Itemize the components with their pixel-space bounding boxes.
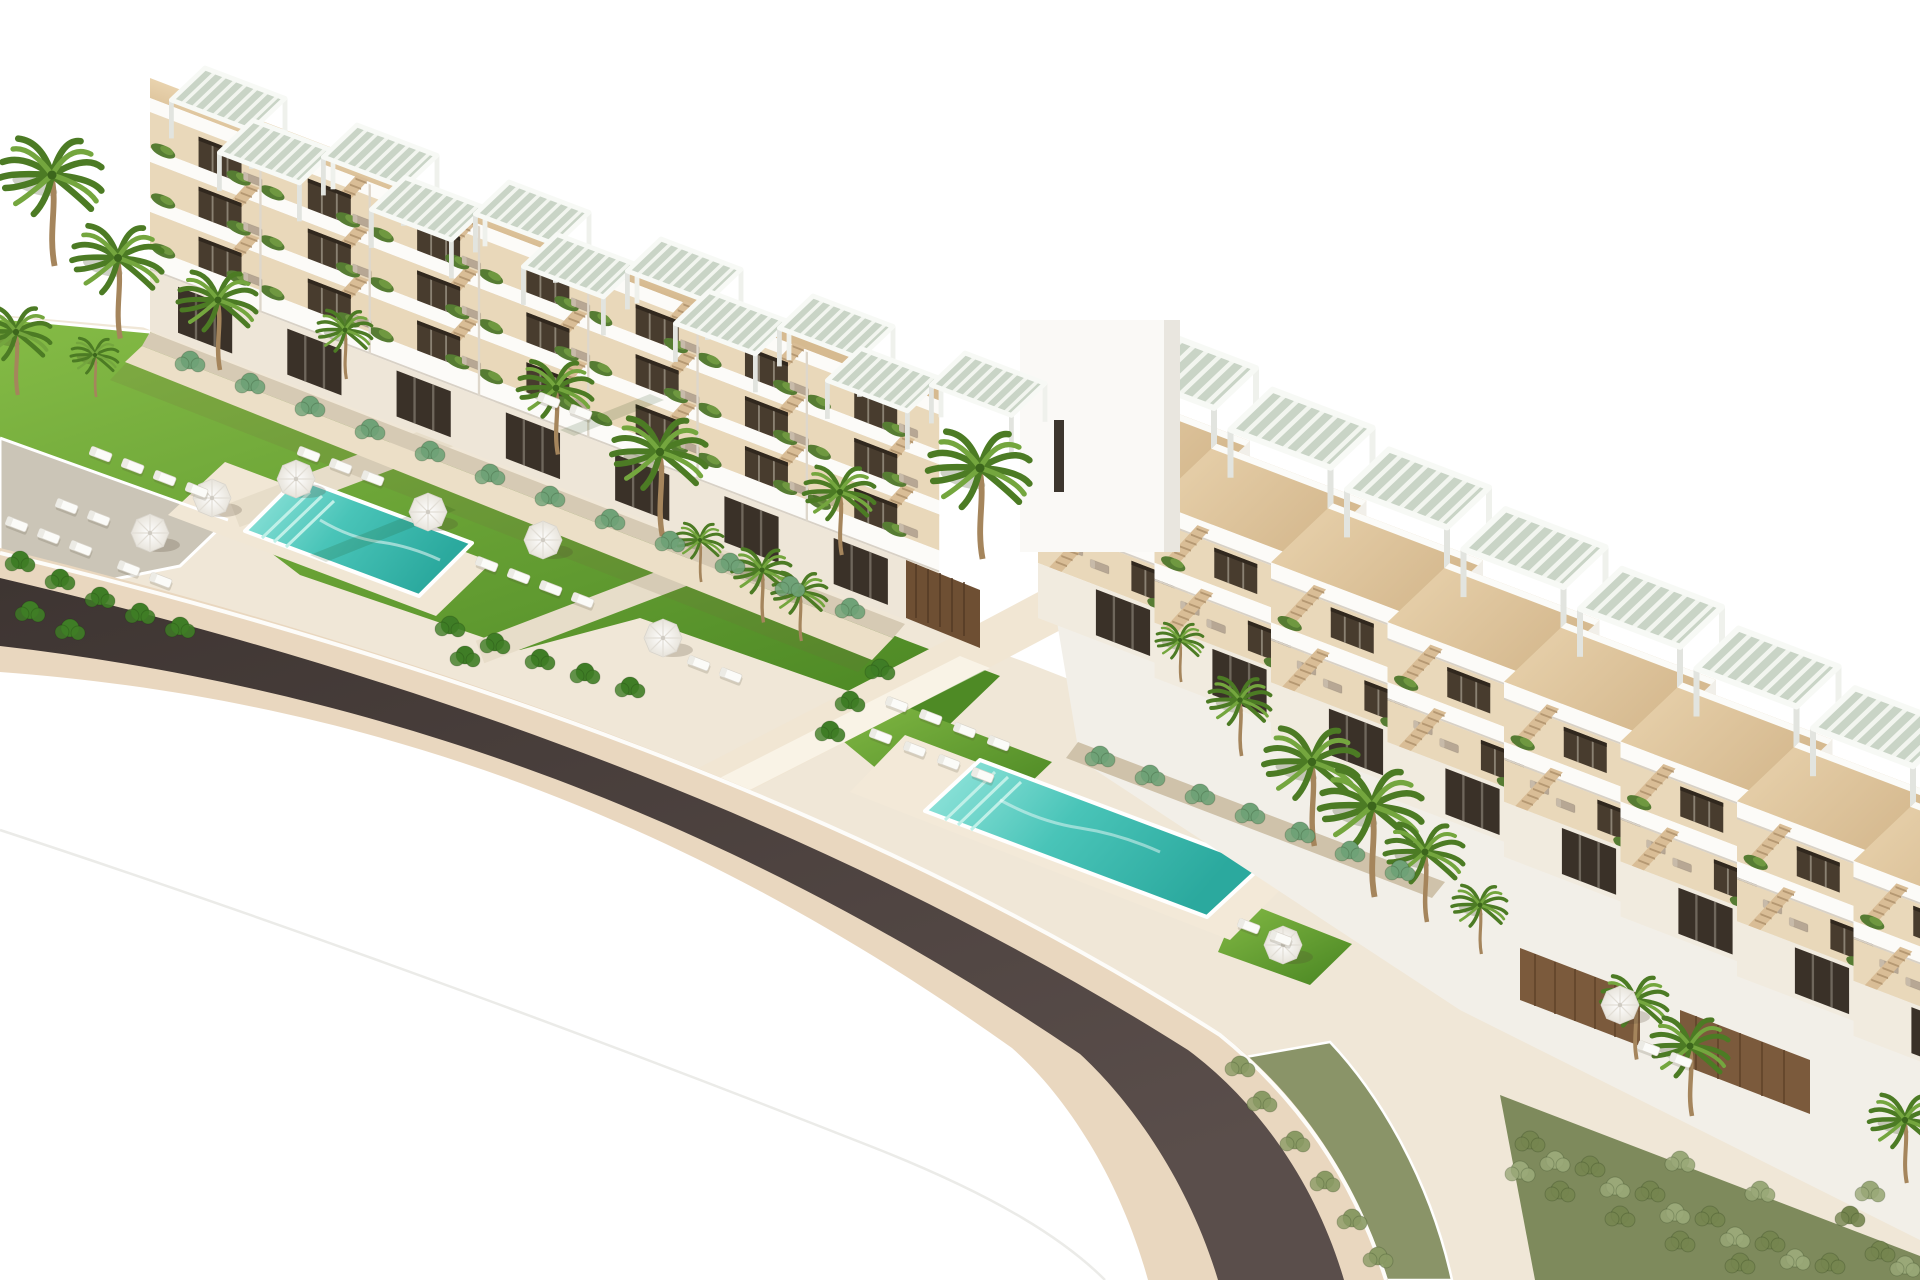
unit-divider [478,226,480,397]
tower-parapet [1018,312,1182,320]
tower-side-shade [1164,318,1180,552]
tower-slit-window [1054,420,1064,492]
unit-divider [806,351,808,522]
stair-tower [1018,312,1182,552]
architectural-rendering [0,0,1920,1280]
tower-front-wall [1020,318,1180,552]
unit-divider [696,309,698,480]
